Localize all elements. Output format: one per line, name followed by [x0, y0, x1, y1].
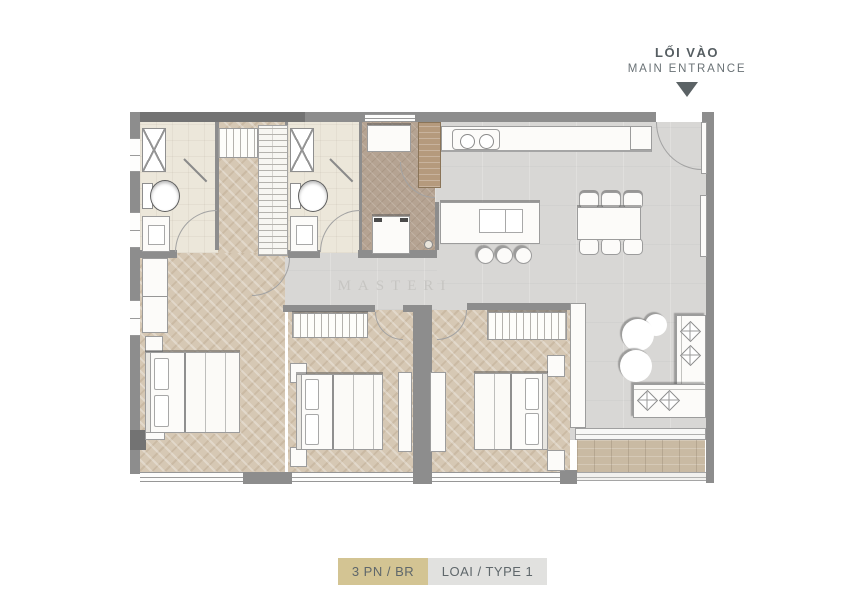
wall-utility-east-b [435, 202, 439, 250]
window-left-1 [130, 138, 140, 172]
divider [143, 296, 167, 297]
duvet [184, 353, 239, 432]
vanity-sink-icon [290, 216, 318, 252]
wall-corridor-south-b [403, 305, 413, 312]
unit-legend: 3 PN / BR LOAI / TYPE 1 [338, 558, 547, 585]
wall-bottom-pier-2 [413, 472, 432, 484]
headboard [297, 375, 302, 449]
balcony-railing [577, 472, 706, 481]
console-bedroom-2 [398, 372, 412, 452]
nightstand [290, 447, 307, 467]
coffee-table-icon [620, 350, 652, 382]
desk-master [430, 372, 446, 452]
wall-master-north [467, 303, 570, 310]
nightstand [547, 450, 565, 471]
wall-top-dark [130, 112, 305, 122]
wardrobe-master [487, 312, 567, 340]
entrance-label: LỐI VÀO MAIN ENTRANCE [612, 45, 762, 97]
legend-bedrooms: 3 PN / BR [338, 558, 428, 585]
entrance-arrow-icon [676, 82, 698, 97]
bed-icon [474, 373, 548, 450]
sink-basin [296, 225, 313, 245]
shower-icon [142, 128, 166, 172]
shower-icon [290, 128, 314, 172]
floor-plan-page: LỐI VÀO MAIN ENTRANCE [0, 0, 861, 595]
cooktop-icon [452, 129, 500, 150]
pillow [525, 378, 539, 410]
toilet-icon [142, 180, 180, 212]
watermark: MASTERI [290, 278, 500, 295]
kitchen-sink-icon [479, 209, 507, 233]
toilet-bowl [298, 180, 328, 212]
sink-basin [148, 225, 165, 245]
wardrobe-icon [218, 128, 258, 158]
pillow [154, 395, 169, 427]
utility-vent [365, 114, 415, 122]
wall-corridor-south-a [283, 305, 375, 312]
dining-table [577, 207, 641, 240]
legend-type: LOAI / TYPE 1 [428, 558, 547, 585]
nightstand [547, 355, 565, 377]
kitchen-sink-icon [505, 209, 523, 233]
floor-drain-icon [424, 240, 433, 249]
headboard [146, 353, 151, 432]
balcony-deck [577, 440, 705, 473]
burner-icon [460, 134, 475, 149]
window-left-3 [130, 300, 140, 336]
wall-bottom-pier-3 [560, 470, 577, 484]
vanity-sink-icon [142, 216, 170, 252]
washing-machine-icon [372, 216, 410, 254]
bar-stool-icon [496, 247, 513, 264]
entrance-opening [656, 112, 702, 122]
window-bedroom-2 [292, 472, 413, 482]
dining-chair-icon [579, 238, 599, 255]
duvet [475, 374, 512, 449]
bed-icon [296, 374, 383, 450]
pillow [154, 358, 169, 390]
bar-stool-icon [515, 247, 532, 264]
floor-plan: MASTERI [130, 112, 714, 490]
column-left [130, 430, 146, 450]
kitchen-island [440, 202, 540, 244]
shelf-unit-icon [258, 125, 288, 256]
washer-detail [400, 218, 408, 222]
washer-detail [374, 218, 382, 222]
wall-bottom-pier-1 [243, 472, 292, 484]
pillow [525, 413, 539, 445]
pillow [305, 414, 319, 445]
window-left-2 [130, 212, 140, 248]
entrance-label-vi: LỐI VÀO [612, 45, 762, 60]
tv-console [570, 303, 586, 428]
entrance-door-leaf [701, 122, 707, 174]
shoe-cabinet [700, 195, 707, 257]
window-master-bedroom [432, 472, 560, 482]
entrance-label-en: MAIN ENTRANCE [612, 63, 762, 75]
wardrobe-bedroom-1 [142, 258, 168, 333]
headboard [542, 374, 547, 449]
dining-chair-icon [623, 238, 643, 255]
pillow [305, 379, 319, 410]
entry-cabinet [630, 126, 652, 150]
wall-right [706, 112, 714, 483]
bed-icon [145, 352, 240, 433]
bar-stool-icon [477, 247, 494, 264]
coffee-table-icon [622, 319, 654, 351]
sliding-door [575, 428, 706, 440]
toilet-icon [290, 180, 328, 212]
nightstand [145, 336, 163, 352]
wardrobe-bedroom-2 [292, 313, 368, 338]
dining-chair-icon [601, 238, 621, 255]
window-bedroom-1 [140, 472, 243, 482]
utility-counter [367, 125, 411, 152]
duvet [332, 375, 382, 449]
burner-icon [479, 134, 494, 149]
toilet-bowl [150, 180, 180, 212]
